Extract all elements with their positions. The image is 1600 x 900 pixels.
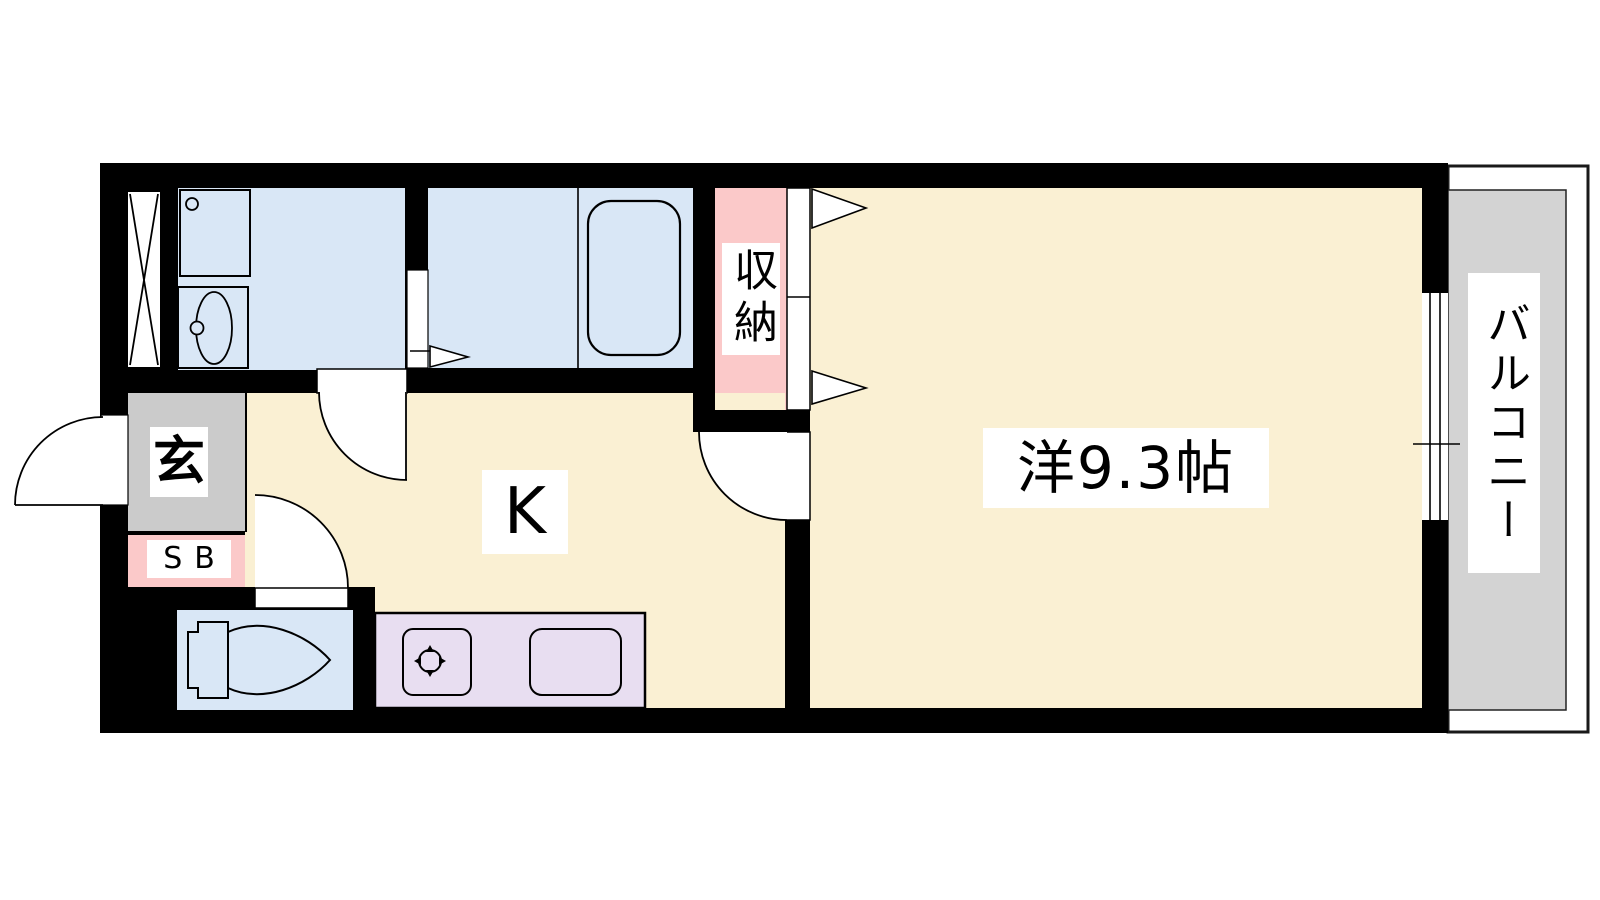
- toilet-door-leaf: [255, 588, 348, 608]
- bathroom-door: [407, 270, 428, 368]
- entrance-door-swing: [15, 417, 103, 505]
- closet-label: 収納: [722, 243, 780, 355]
- balcony-window: [1422, 293, 1448, 520]
- closet-doors: [787, 188, 810, 410]
- room-door-leaf: [786, 432, 810, 520]
- entrance-label: 玄: [150, 427, 208, 497]
- shoe-box-label: SB: [147, 540, 231, 578]
- floor-plan: 玄 SB 収納 K 洋9.3帖 バルコニー: [0, 0, 1600, 900]
- toilet-tank-icon: [188, 622, 228, 698]
- main-room-label: 洋9.3帖: [983, 428, 1269, 508]
- kitchen-label: K: [482, 470, 568, 554]
- wall-kitchen-room: [785, 520, 810, 708]
- wall-closet-left: [693, 188, 715, 432]
- washroom-floor: [178, 188, 405, 370]
- wall-closet-bottom: [695, 410, 810, 432]
- basin-faucet-icon: [191, 322, 204, 335]
- washroom-door-leaf: [317, 369, 407, 393]
- floor-plan-drawing: [0, 0, 1600, 900]
- balcony-label: バルコニー: [1468, 273, 1540, 573]
- entrance-door-leaf: [101, 415, 128, 505]
- bathroom-floor: [428, 188, 693, 368]
